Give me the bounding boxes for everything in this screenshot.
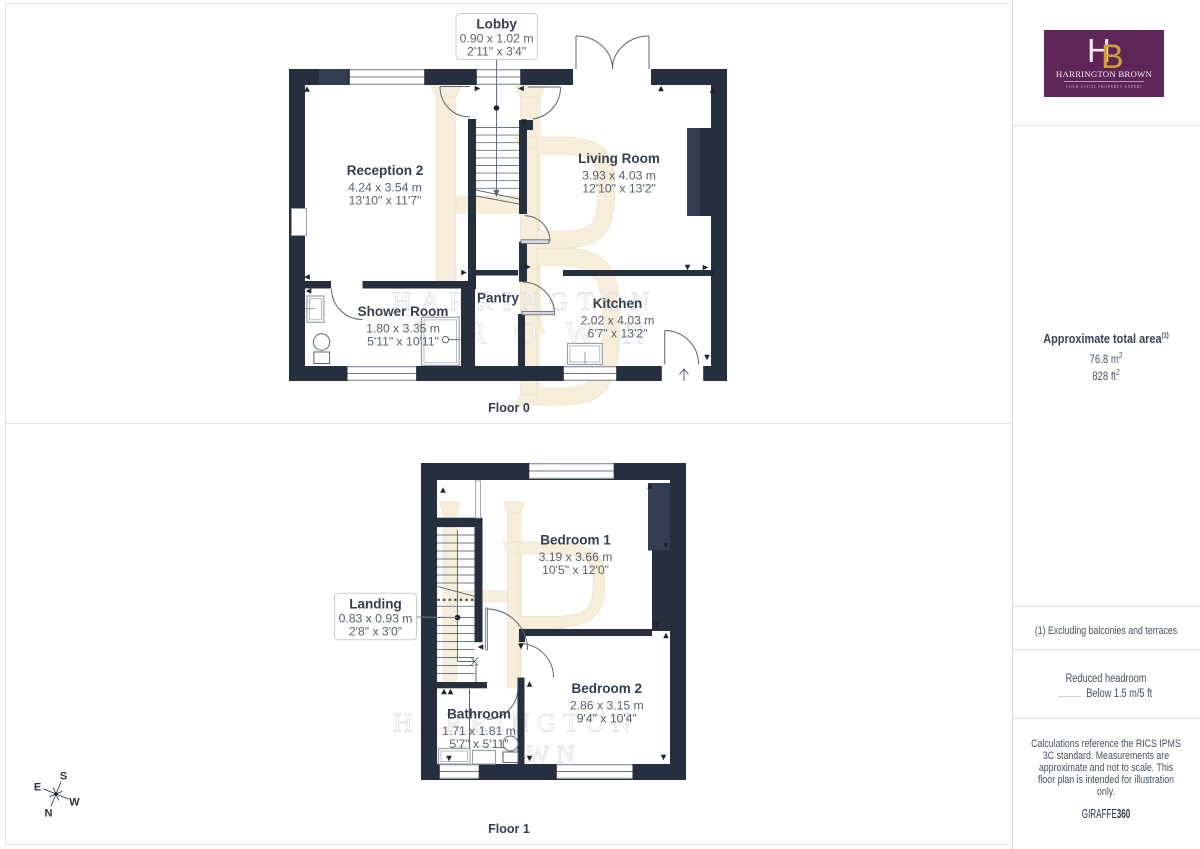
svg-text:Bathroom: Bathroom [447,706,511,721]
svg-text:Lobby: Lobby [476,17,517,32]
svg-text:Bedroom 2: Bedroom 2 [572,681,643,696]
svg-text:W: W [69,797,80,809]
svg-text:4.24 x 3.54 m: 4.24 x 3.54 m [348,181,422,195]
svg-text:3.19 x 3.66 m: 3.19 x 3.66 m [539,550,613,564]
svg-text:Floor 1: Floor 1 [488,822,530,836]
svg-text:Shower Room: Shower Room [358,304,449,319]
svg-text:Landing: Landing [349,597,402,612]
svg-text:2.86 x 3.15 m: 2.86 x 3.15 m [570,699,644,713]
svg-text:1.80 x 3.35 m: 1.80 x 3.35 m [366,322,440,336]
svg-text:9'4" x 10'4": 9'4" x 10'4" [577,712,637,726]
svg-text:Bedroom 1: Bedroom 1 [540,533,611,548]
svg-text:5'7" x 5'11": 5'7" x 5'11" [449,737,508,751]
svg-text:0.83 x 0.93 m: 0.83 x 0.93 m [339,612,413,626]
svg-text:Floor 0: Floor 0 [488,401,530,415]
svg-text:3.93 x 4.03 m: 3.93 x 4.03 m [582,169,656,183]
svg-text:Living Room: Living Room [578,151,660,166]
svg-text:Kitchen: Kitchen [593,296,643,311]
svg-text:Pantry: Pantry [477,291,520,306]
svg-text:12'10" x 13'2": 12'10" x 13'2" [582,182,656,196]
svg-text:S: S [60,771,67,783]
svg-text:5'11" x 10'11": 5'11" x 10'11" [367,335,439,349]
svg-text:6'7" x 13'2": 6'7" x 13'2" [587,327,647,341]
svg-text:13'10" x 11'7": 13'10" x 11'7" [349,194,422,208]
svg-text:0.90 x 1.02 m: 0.90 x 1.02 m [460,32,534,46]
svg-text:Reception 2: Reception 2 [347,163,424,178]
svg-text:N: N [45,808,53,820]
svg-text:10'5" x 12'0": 10'5" x 12'0" [542,563,609,577]
svg-text:2'8" x 3'0": 2'8" x 3'0" [349,625,402,639]
svg-text:2.02 x 4.03 m: 2.02 x 4.03 m [581,314,655,328]
svg-text:2'11" x 3'4": 2'11" x 3'4" [467,45,526,59]
svg-text:E: E [34,782,41,794]
svg-text:1.71 x 1.81 m: 1.71 x 1.81 m [442,724,516,738]
